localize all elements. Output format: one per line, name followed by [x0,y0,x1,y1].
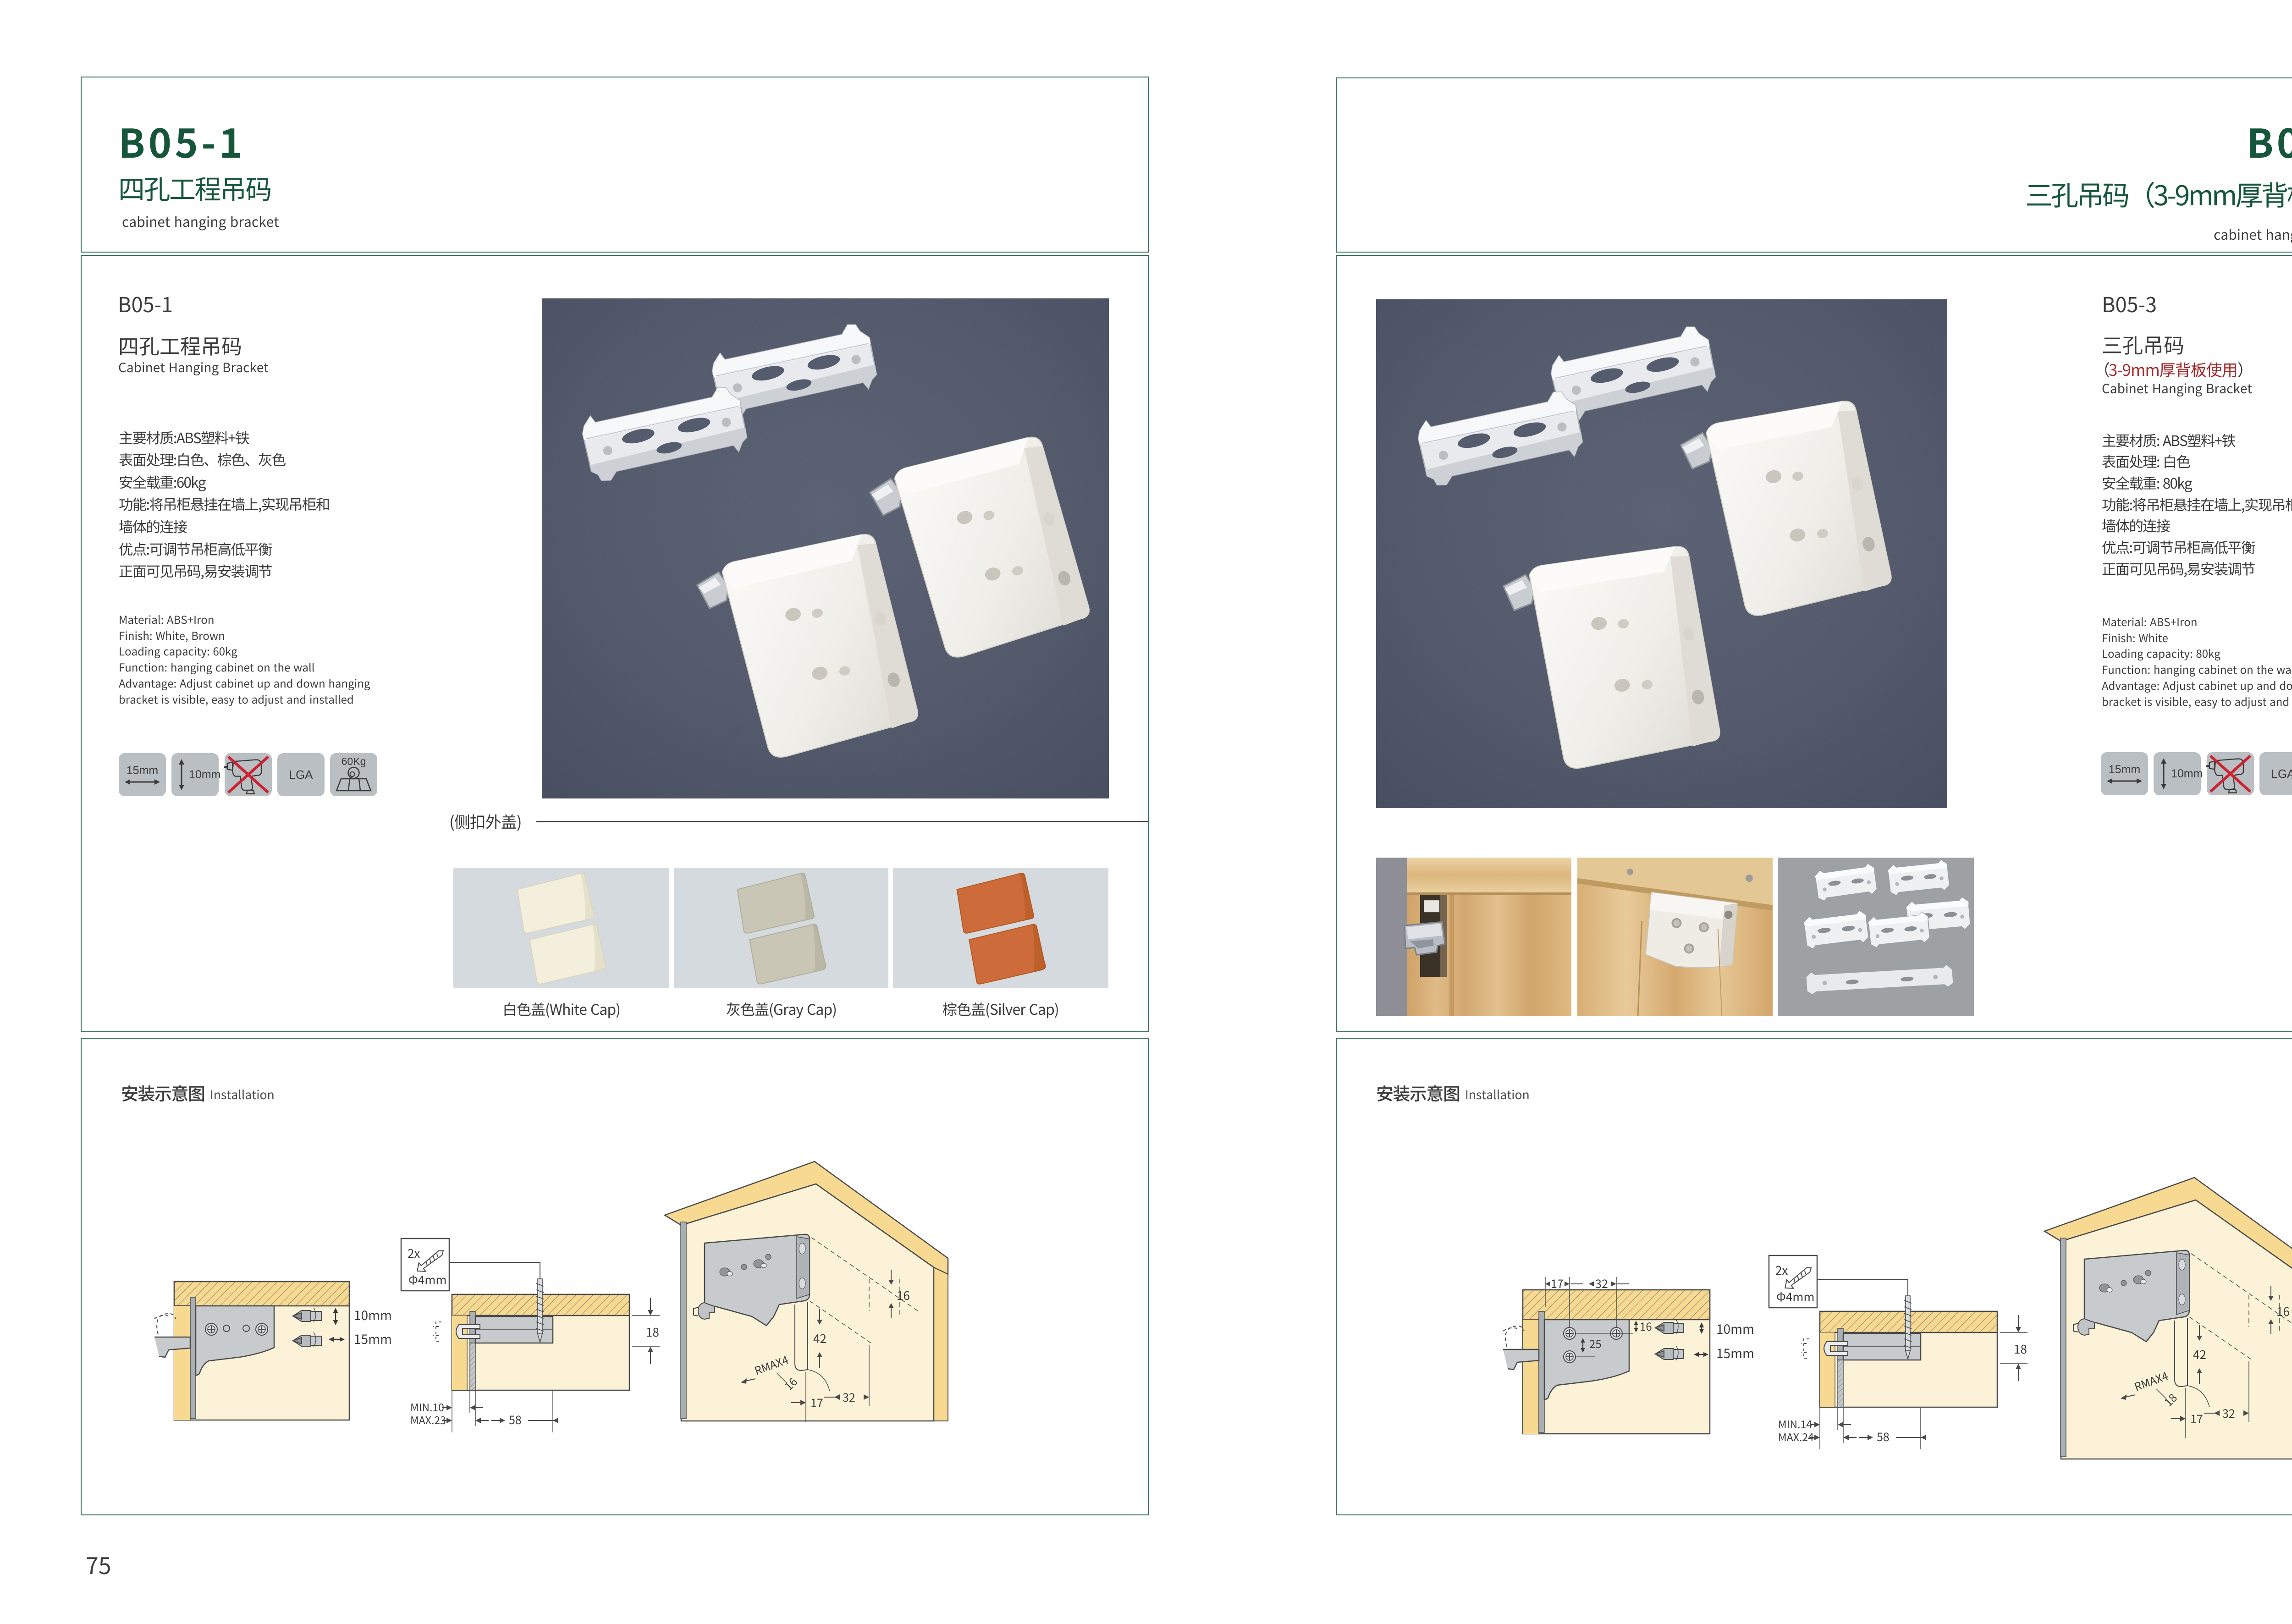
svg-text:15mm: 15mm [127,764,158,777]
svg-text:15mm: 15mm [2109,763,2140,776]
svg-text:60Kg: 60Kg [342,755,366,767]
svg-text:10mm: 10mm [189,768,220,781]
svg-text:LGA: LGA [2271,767,2292,781]
svg-text:10mm: 10mm [2171,767,2203,780]
svg-text:LGA: LGA [289,768,313,782]
